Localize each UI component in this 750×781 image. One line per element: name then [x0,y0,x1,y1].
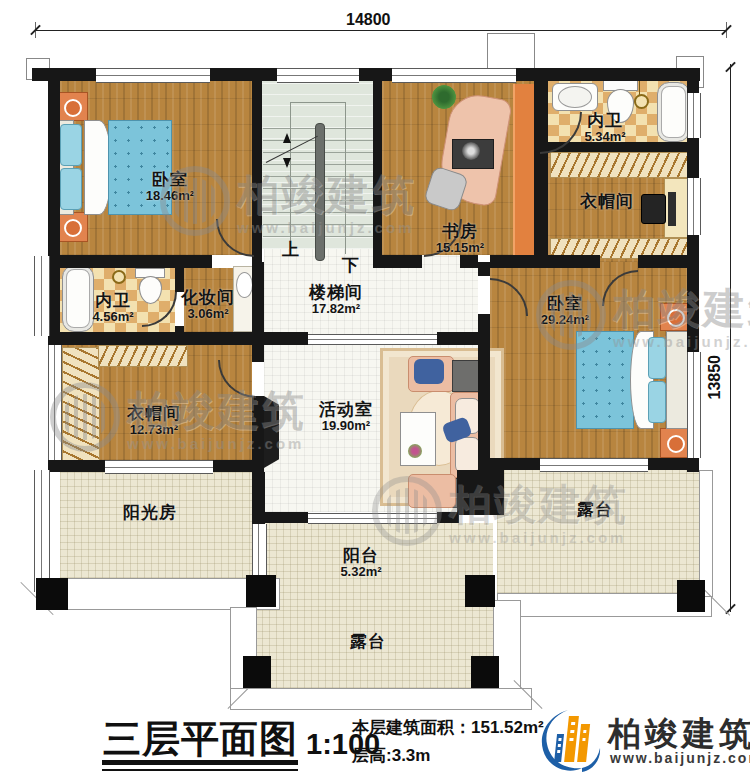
study-cabinet [513,84,536,255]
bed-pillow [648,337,666,379]
stair-edge [345,102,346,254]
wall [258,512,308,523]
wall [490,255,600,268]
window [687,93,701,138]
room-name: 露台 [338,632,398,651]
room-label-stair-hall: 楼梯间 17.82m² [290,283,382,317]
wall [478,314,490,458]
pillar [36,578,68,610]
room-area: 18.46m² [125,189,215,204]
window [687,352,701,458]
stair-arrow-down [283,158,291,168]
wall [687,138,699,178]
wall [210,68,277,81]
room-area: 15.15m² [414,241,506,256]
window [96,68,210,83]
wall [252,396,264,472]
wall [32,68,96,81]
room-name: 衣帽间 [563,192,651,211]
floor-area-value: 151.52m² [471,718,544,737]
terrace-right-floor [497,470,700,593]
room-area: 19.90m² [298,419,394,434]
room-area: 5.32m² [322,565,400,580]
sink-basin [558,86,592,108]
pillar [471,656,499,688]
room-name: 内卫 [76,291,150,310]
wall [252,472,265,524]
room-name: 阳台 [322,546,400,565]
room-label-bath-left: 内卫 4.56m² [76,291,150,325]
room-name: 楼梯间 [290,283,382,302]
shower-head [634,94,649,109]
wall [359,68,392,81]
room-label-bedroom-right: 卧室 29.24m² [522,294,608,328]
room-label-sunroom: 阳光房 [103,503,197,522]
wall [252,262,264,362]
bed-headboard [666,331,688,429]
sunroom-floor [60,472,252,578]
room-area: 3.06m² [172,307,244,322]
right-dimension-line [730,64,731,612]
nightstand [660,428,690,458]
wall [60,332,252,345]
wall [638,255,687,268]
floor-area-label: 本层建筑面积： [352,718,471,737]
wall [437,332,478,345]
window [34,256,50,336]
wall [460,255,478,268]
wall [437,512,459,523]
wall [48,81,60,255]
stair-edge [290,102,346,103]
wall [60,460,105,472]
monitor-screen [462,142,480,160]
window [687,178,701,235]
coffee-table [400,412,436,466]
pillar [465,575,495,607]
stair-down-label: 下 [342,254,359,277]
shower-head [112,270,126,284]
stair-up-label: 上 [282,238,299,261]
wardrobe-rack [62,347,100,461]
wardrobe-rack [98,345,188,367]
room-label-closet-left: 衣帽间 12.73m² [108,404,200,438]
platform-edge [36,578,280,610]
window [34,470,50,592]
room-area: 4.56m² [76,310,150,325]
room-name: 内卫 [568,111,642,130]
room-area: 29.24m² [522,313,608,328]
wall [478,262,490,276]
plant-icon [432,85,456,109]
wall [457,470,504,515]
chimney-outline [487,33,535,71]
wall [382,255,422,268]
window [540,458,648,472]
room-name: 卧室 [522,294,608,313]
bed-pillow [60,124,82,166]
floor-height-text: 层高:3.3m [352,744,430,767]
armchair [408,474,456,508]
floor-area-text: 本层建筑面积：151.52m² [352,716,544,739]
wall [373,81,382,268]
floor-height-value: 3.3m [392,746,431,765]
room-area: 5.34m² [568,130,642,145]
bed-quilt [576,331,634,429]
bed-pillow [60,168,82,210]
nightstand [56,92,88,121]
wall [60,255,212,268]
top-dimension-line [35,30,726,31]
pillar [246,575,276,607]
room-label-bedroom-tl: 卧室 18.46m² [125,170,215,204]
room-label-closet-tr: 衣帽间 [563,192,651,211]
room-name: 阳光房 [103,503,197,522]
pillar [243,656,271,688]
bathtub [657,82,690,142]
stair-arrow-up [283,133,291,143]
nightstand [56,212,88,242]
room-label-study: 书房 15.15m² [414,222,506,256]
wardrobe-rack [550,152,688,178]
window [392,68,516,83]
flower-vase [408,444,422,458]
balcony-door [308,513,437,524]
room-label-makeup: 化妆间 3.06m² [172,288,244,322]
room-name: 化妆间 [172,288,244,307]
floor-height-label: 层高: [352,746,392,765]
room-name: 衣帽间 [108,404,200,423]
window [48,345,62,460]
wall [534,81,548,268]
pillar [677,580,705,612]
nightstand [660,303,690,331]
room-name: 卧室 [125,170,215,189]
doorway-threshold [308,334,437,345]
window [105,460,213,474]
drawing-title: 三层平面图 [103,714,298,765]
room-label-activity: 活动室 19.90m² [298,400,394,434]
platform-edge [230,688,532,710]
room-label-terrace-right: 露台 [557,500,633,519]
room-label-terrace-bottom: 露台 [338,632,398,651]
stair-rail [315,123,325,261]
room-name: 活动室 [298,400,394,419]
wall [264,332,308,345]
wall [213,460,252,472]
right-dimension-label: 13850 [706,352,724,403]
wall [648,458,688,470]
room-area: 17.82m² [290,302,382,317]
stair-edge [290,102,291,254]
wall [687,458,699,472]
floor-plan: 14800 13850 [0,0,750,781]
room-area: 12.73m² [108,423,200,438]
wall [516,68,700,81]
platform-edge [699,470,713,597]
sofa-cushion [455,437,480,473]
company-logo-url: www.baijunjz.com [610,750,750,766]
wall [478,458,540,470]
tv-icon [264,396,279,468]
wall [687,81,699,93]
top-dimension-label: 14800 [342,11,395,29]
room-label-bath-tr: 内卫 5.34m² [568,111,642,145]
bed-pillow [648,381,666,423]
window [277,68,359,83]
title-underline [102,760,298,765]
speaker-icon [668,192,676,226]
room-name: 露台 [557,500,633,519]
company-logo-icon [540,706,602,774]
room-label-balcony: 阳台 5.32m² [322,546,400,580]
wall [687,235,699,352]
room-name: 书房 [414,222,506,241]
window [252,524,267,576]
person-figure [414,359,444,384]
title-underline-thin [102,769,298,771]
